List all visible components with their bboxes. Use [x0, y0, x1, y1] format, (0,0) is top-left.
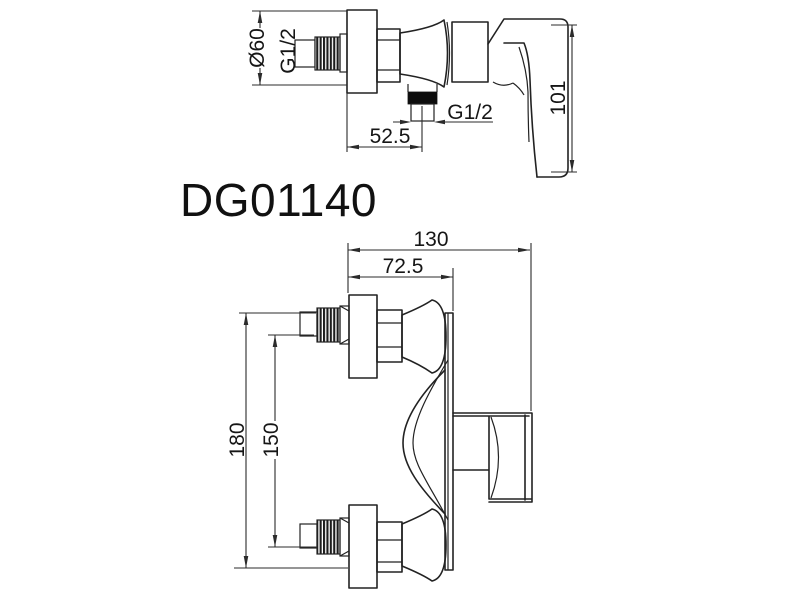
- front-wall-plate: [445, 313, 453, 570]
- dim-wall-to-body-face: 72.5: [383, 255, 424, 278]
- arrow-left-icon: [347, 145, 359, 150]
- arrow-right-icon: [441, 275, 453, 280]
- side-escutcheon: [347, 10, 377, 93]
- arrow-up-icon: [244, 313, 249, 325]
- dim-overall-width: 130: [413, 228, 448, 251]
- front-top-thread: [317, 308, 340, 342]
- dim-lines-overall-width: [348, 243, 531, 411]
- side-outlet-band: [408, 92, 437, 104]
- dim-inlet-thread: G1/2: [277, 28, 300, 74]
- side-inlet-thread: [315, 37, 340, 70]
- front-view-dimensions: 130 72.5 180 150: [226, 228, 531, 568]
- arrow-up-icon: [570, 25, 575, 37]
- arrow-down-icon: [570, 160, 575, 172]
- front-bottom-thread: [317, 520, 340, 554]
- side-view-dimensions: Ø60 G1/2 52.5 G1/2 101: [246, 11, 577, 172]
- arrow-down-icon: [273, 535, 278, 547]
- side-outlet-neck: [408, 84, 437, 92]
- front-knob: [453, 413, 532, 502]
- front-view: 130 72.5 180 150: [226, 228, 532, 588]
- arrow-right-icon: [410, 145, 422, 150]
- dim-inlet-center-distance: 150: [260, 422, 283, 457]
- front-bottom-hexnut: [340, 518, 349, 556]
- front-top-hexbody-facets: [377, 323, 402, 347]
- front-knob-face-arc: [491, 417, 499, 498]
- front-bottom-escutcheon: [349, 505, 377, 588]
- front-lever-outer-curve: [403, 370, 445, 514]
- front-top-hexnut-chamfer: [340, 306, 349, 344]
- front-bottom-flare: [402, 509, 446, 581]
- arrow-up-icon: [258, 11, 263, 23]
- datasheet-page: Ø60 G1/2 52.5 G1/2 101 DG01140: [0, 0, 800, 600]
- side-nut-facets: [377, 40, 400, 70]
- arrow-right-icon: [400, 120, 411, 125]
- front-bottom-hexbody: [377, 522, 402, 572]
- arrow-left-icon: [348, 248, 360, 253]
- side-inlet-collar: [340, 34, 347, 72]
- side-view: Ø60 G1/2 52.5 G1/2 101: [246, 10, 577, 177]
- dim-handle-height: 101: [547, 80, 570, 115]
- side-body: [452, 22, 488, 82]
- side-view-geometry: [295, 10, 568, 177]
- front-lever-inner-curve: [413, 360, 448, 520]
- arrow-down-icon: [258, 73, 263, 85]
- front-bottom-hexbody-facets: [377, 540, 402, 562]
- front-top-flare: [402, 300, 446, 373]
- model-code: DG01140: [180, 174, 377, 226]
- side-handle-inner-edge: [504, 43, 537, 177]
- technical-drawing: Ø60 G1/2 52.5 G1/2 101 DG01140: [0, 0, 800, 600]
- arrow-left-icon: [348, 275, 360, 280]
- front-bottom-hexnut-chamfer: [340, 518, 349, 556]
- side-flare: [400, 20, 448, 87]
- dim-outlet-thread: G1/2: [447, 101, 493, 124]
- dim-flange-diameter: Ø60: [246, 28, 269, 68]
- side-body-underside: [493, 82, 524, 95]
- front-top-pipe: [300, 312, 317, 336]
- side-nut: [377, 29, 400, 82]
- dim-wall-to-outlet: 52.5: [370, 125, 411, 148]
- front-top-hexnut: [340, 306, 349, 344]
- front-top-hexbody: [377, 310, 402, 362]
- arrow-left-icon: [434, 120, 445, 125]
- front-bottom-pipe: [300, 524, 317, 548]
- arrow-right-icon: [518, 248, 530, 253]
- arrow-down-icon: [244, 556, 249, 568]
- dim-overall-height: 180: [226, 422, 249, 457]
- front-top-escutcheon: [349, 295, 377, 378]
- arrow-up-icon: [273, 335, 278, 347]
- front-view-geometry: [300, 295, 532, 588]
